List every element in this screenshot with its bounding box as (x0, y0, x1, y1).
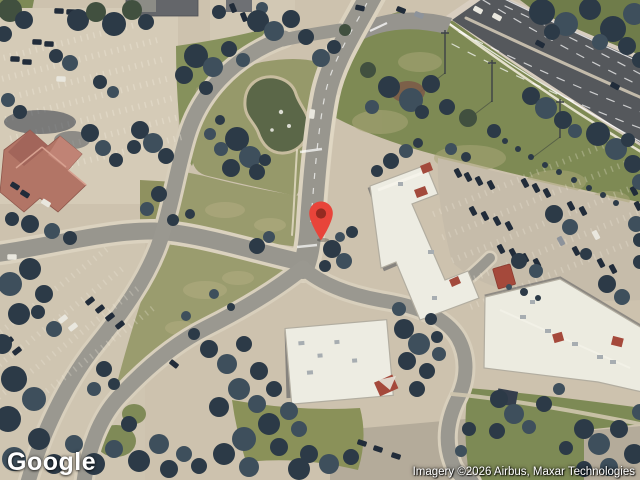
google-logo[interactable]: Google (7, 448, 96, 477)
pin-shadow (317, 238, 329, 242)
pin-dot (316, 208, 326, 218)
pin-body (309, 202, 333, 241)
office-building-south (285, 320, 398, 405)
map-pin-marker[interactable] (308, 200, 334, 242)
imagery-attribution: Imagery ©2026 Airbus, Maxar Technologies (413, 466, 635, 478)
map-viewport[interactable]: Google Imagery ©2026 Airbus, Maxar Techn… (0, 0, 640, 480)
